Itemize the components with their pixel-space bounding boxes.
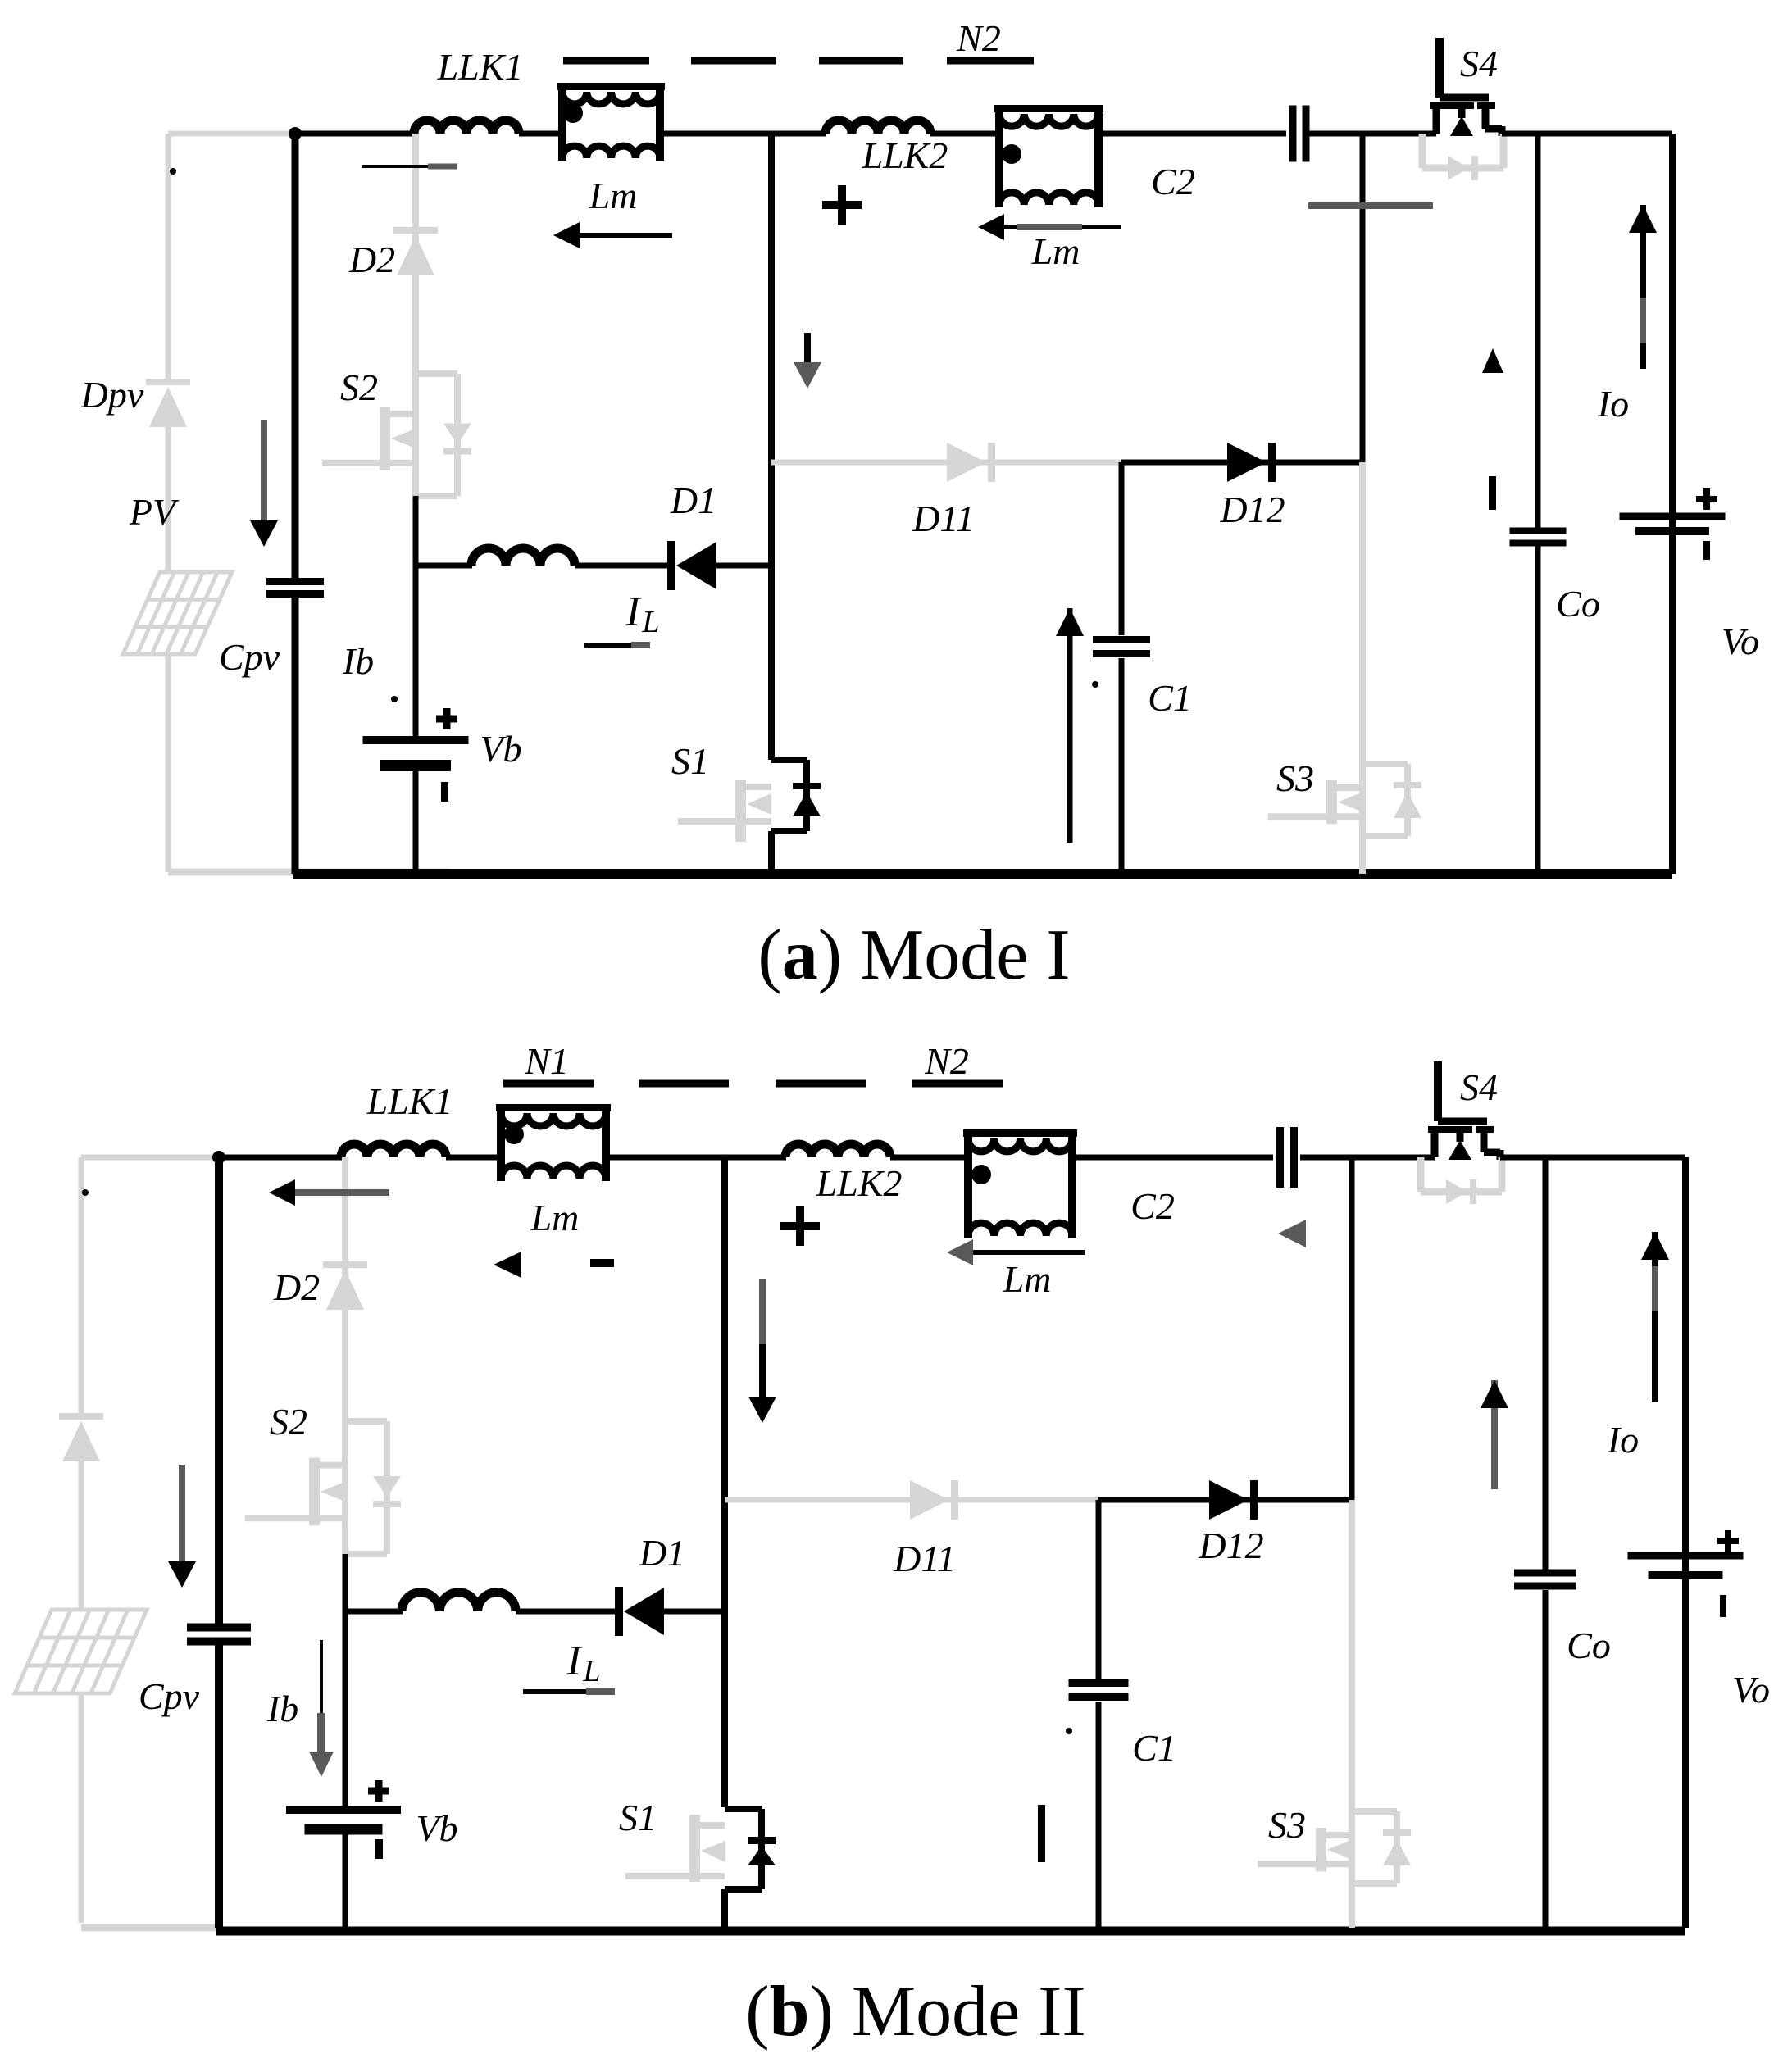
- svg-text:C1: C1: [1132, 1727, 1176, 1769]
- svg-text:Cpv: Cpv: [219, 636, 280, 678]
- svg-text:S1: S1: [671, 740, 709, 782]
- svg-text:N2: N2: [956, 17, 1001, 59]
- svg-text:C2: C2: [1151, 161, 1195, 202]
- svg-text:Vb: Vb: [416, 1807, 457, 1849]
- svg-text:S1: S1: [619, 1797, 657, 1838]
- svg-text:D12: D12: [1198, 1524, 1263, 1566]
- svg-text:N2: N2: [924, 1040, 969, 1082]
- svg-text:D1: D1: [639, 1532, 685, 1574]
- svg-text:Co: Co: [1567, 1624, 1611, 1666]
- svg-text:Dpv: Dpv: [80, 374, 144, 416]
- svg-text:S3: S3: [1276, 757, 1314, 799]
- svg-text:Vb: Vb: [480, 728, 521, 770]
- svg-text:Lm: Lm: [530, 1197, 580, 1238]
- svg-text:L: L: [582, 1654, 600, 1688]
- svg-text:D2: D2: [348, 239, 395, 280]
- svg-text:D12: D12: [1219, 488, 1285, 530]
- svg-text:C2: C2: [1130, 1185, 1175, 1227]
- svg-text:LLK2: LLK2: [816, 1162, 903, 1204]
- svg-text:D2: D2: [273, 1266, 320, 1308]
- svg-text:Io: Io: [1607, 1419, 1639, 1461]
- svg-text:LLK2: LLK2: [862, 134, 948, 176]
- svg-text:Co: Co: [1556, 583, 1600, 625]
- svg-text:L: L: [641, 605, 659, 639]
- svg-text:N1: N1: [524, 1040, 569, 1082]
- svg-text:LLK1: LLK1: [366, 1080, 453, 1122]
- svg-text:Ib: Ib: [266, 1688, 298, 1729]
- svg-text:D11: D11: [893, 1538, 956, 1579]
- svg-text:Io: Io: [1597, 383, 1629, 425]
- svg-text:Cpv: Cpv: [139, 1675, 200, 1717]
- svg-text:Vo: Vo: [1732, 1669, 1770, 1711]
- svg-text:(b) Mode II: (b) Mode II: [745, 1972, 1085, 2052]
- svg-text:S2: S2: [340, 366, 378, 408]
- svg-text:Lm: Lm: [589, 175, 638, 216]
- svg-text:S4: S4: [1460, 1066, 1498, 1108]
- svg-text:S3: S3: [1268, 1804, 1306, 1846]
- svg-text:Lm: Lm: [1031, 230, 1080, 272]
- svg-text:I: I: [625, 588, 642, 635]
- svg-text:I: I: [566, 1638, 583, 1684]
- svg-text:PV: PV: [129, 491, 180, 533]
- svg-text:S4: S4: [1460, 43, 1498, 84]
- svg-text:C1: C1: [1148, 677, 1192, 719]
- svg-text:Lm: Lm: [1003, 1258, 1052, 1300]
- svg-text:Ib: Ib: [342, 640, 374, 682]
- svg-text:(a) Mode I: (a) Mode I: [757, 916, 1070, 995]
- svg-text:D11: D11: [912, 498, 975, 539]
- svg-text:S2: S2: [270, 1401, 307, 1443]
- svg-text:D1: D1: [670, 479, 716, 521]
- svg-text:Vo: Vo: [1722, 620, 1759, 662]
- svg-text:LLK1: LLK1: [437, 46, 524, 88]
